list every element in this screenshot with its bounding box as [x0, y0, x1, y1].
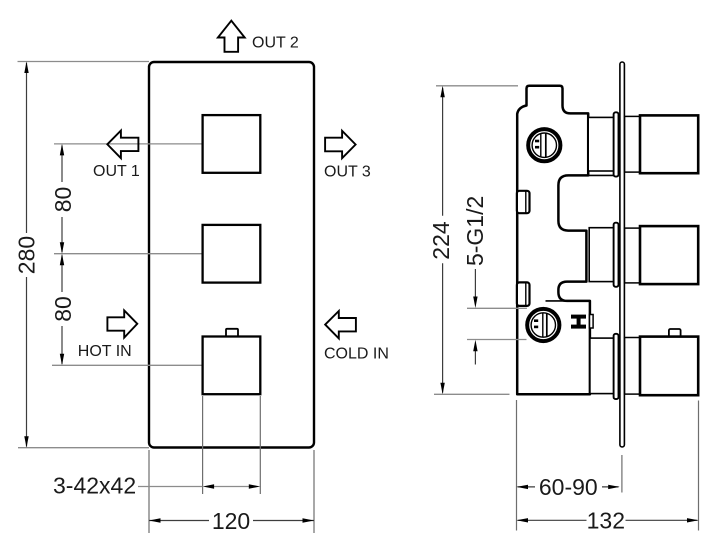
svg-text:80: 80 [50, 296, 76, 322]
svg-text:280: 280 [14, 236, 40, 274]
svg-text:OUT 1: OUT 1 [93, 163, 140, 180]
svg-text:COLD IN: COLD IN [324, 346, 389, 363]
svg-text:60-90: 60-90 [539, 474, 598, 500]
svg-text:80: 80 [50, 187, 76, 213]
svg-text:224: 224 [428, 221, 454, 260]
svg-text:120: 120 [212, 508, 250, 534]
svg-text:3-42x42: 3-42x42 [53, 473, 136, 499]
svg-text:OUT 2: OUT 2 [252, 34, 299, 51]
svg-text:OUT 3: OUT 3 [324, 164, 371, 181]
svg-text:HOT IN: HOT IN [78, 343, 132, 360]
svg-text:5-G1/2: 5-G1/2 [462, 196, 488, 266]
svg-text:132: 132 [587, 508, 625, 534]
